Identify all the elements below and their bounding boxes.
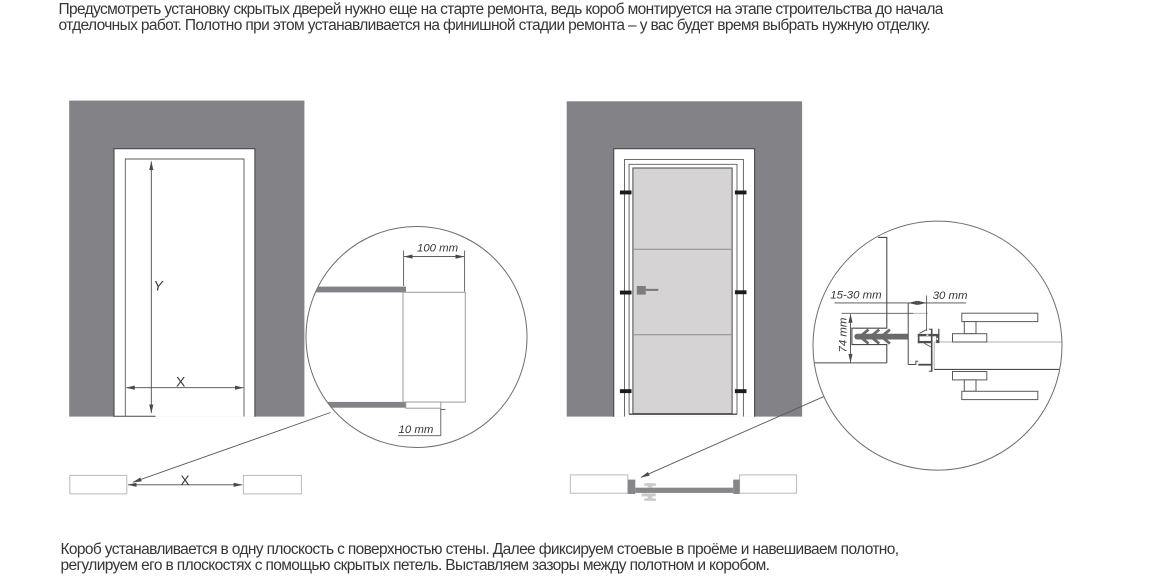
svg-text:X: X: [176, 373, 186, 389]
svg-text:10 mm: 10 mm: [399, 424, 434, 436]
svg-text:X: X: [181, 473, 190, 488]
svg-text:15-30 mm: 15-30 mm: [830, 290, 881, 302]
svg-text:74 mm: 74 mm: [838, 318, 850, 353]
svg-text:30 mm: 30 mm: [933, 290, 968, 302]
svg-text:100 mm: 100 mm: [417, 243, 458, 255]
